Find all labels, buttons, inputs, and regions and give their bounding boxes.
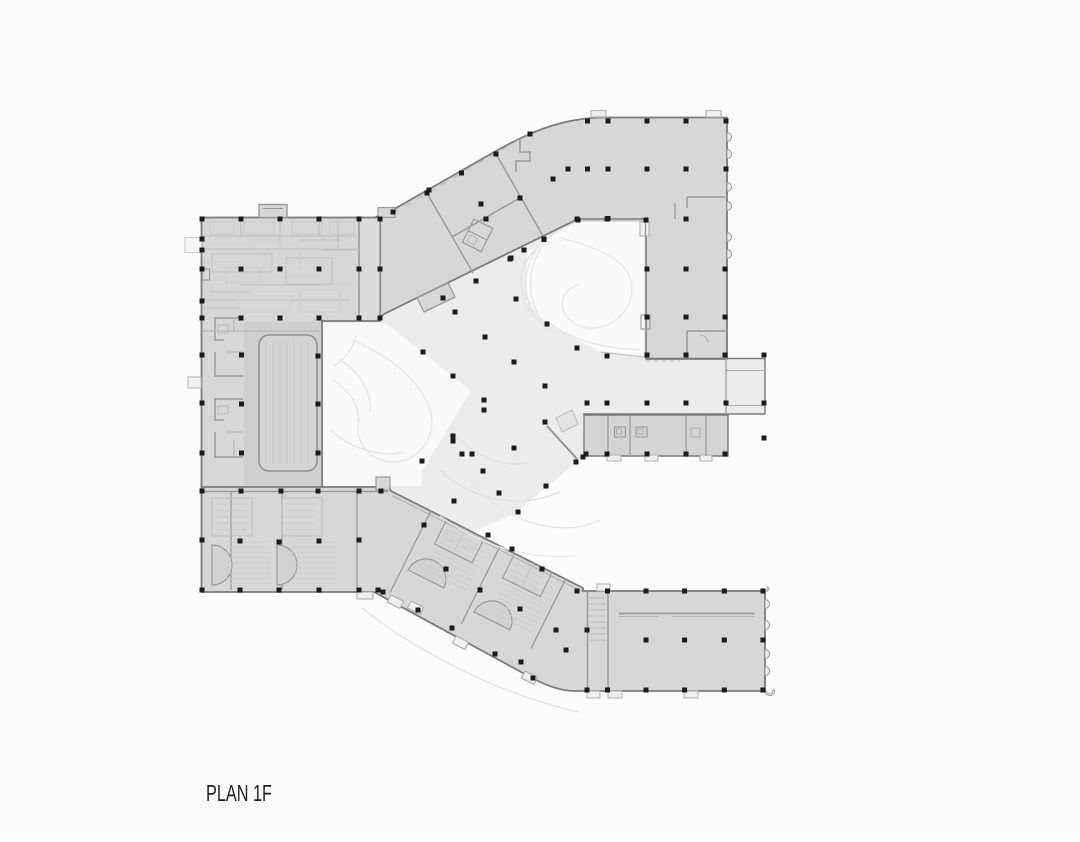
svg-text:PLAN 1F: PLAN 1F xyxy=(206,780,272,806)
